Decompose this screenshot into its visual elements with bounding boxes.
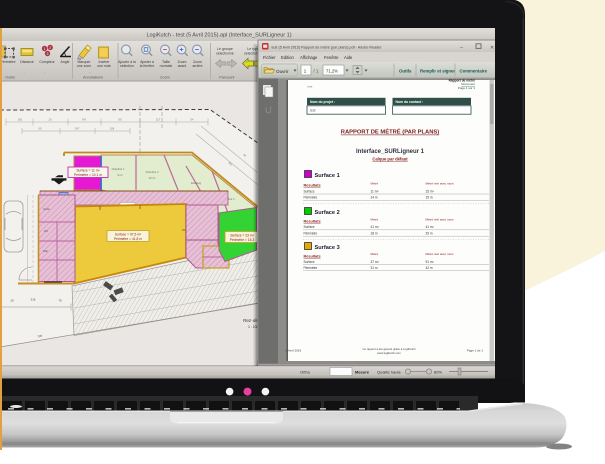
svg-text:Zoom: Zoom bbox=[160, 76, 170, 80]
svg-text:Fenêtre: Fenêtre bbox=[324, 55, 339, 60]
svg-text:Chambre 1: Chambre 1 bbox=[112, 167, 125, 171]
svg-text:Métré: Métré bbox=[371, 181, 379, 185]
svg-text:SdE: SdE bbox=[43, 250, 48, 253]
svg-text:✕: ✕ bbox=[490, 45, 494, 51]
svg-text:/ 1: / 1 bbox=[314, 69, 319, 74]
svg-text:Commentaire: Commentaire bbox=[460, 69, 488, 74]
svg-text:Angle: Angle bbox=[61, 60, 70, 64]
svg-text:10 m²: 10 m² bbox=[149, 176, 156, 180]
svg-text:Périmètre = 14,1 m: Périmètre = 14,1 m bbox=[74, 173, 102, 177]
svg-text:281: 281 bbox=[18, 118, 23, 122]
svg-text:158: 158 bbox=[110, 127, 115, 131]
svg-text:Métré: Métré bbox=[371, 252, 379, 256]
svg-text:www.logikutch.com: www.logikutch.com bbox=[377, 351, 401, 355]
svg-text:Qualité haute: Qualité haute bbox=[377, 370, 402, 375]
svg-text:Ouvrir: Ouvrir bbox=[276, 69, 289, 74]
svg-text:247: 247 bbox=[75, 127, 80, 131]
svg-text:Page 1 de 1: Page 1 de 1 bbox=[467, 349, 484, 353]
svg-text:Dressing: Dressing bbox=[191, 181, 202, 185]
svg-text:sélection: sélection bbox=[120, 64, 134, 68]
svg-text:Aide: Aide bbox=[344, 55, 353, 60]
svg-text:Périmètre = 18,3: Périmètre = 18,3 bbox=[230, 238, 255, 242]
svg-text:Compteur: Compteur bbox=[39, 60, 55, 64]
svg-text:Métré réel avec murs: Métré réel avec murs bbox=[426, 252, 455, 256]
svg-text:test (5 Avril 2015) Rapport de: test (5 Avril 2015) Rapport de métré (pa… bbox=[272, 45, 383, 49]
svg-text:9 m²: 9 m² bbox=[117, 173, 122, 177]
svg-text:normale: normale bbox=[160, 64, 173, 68]
svg-text:Surface: Surface bbox=[304, 225, 315, 229]
svg-text:la fenêtre: la fenêtre bbox=[140, 64, 155, 68]
svg-text:3: 3 bbox=[47, 52, 49, 56]
svg-text:avant: avant bbox=[178, 64, 187, 68]
svg-text:Périmètre: Périmètre bbox=[0, 60, 15, 64]
svg-text:test: test bbox=[308, 84, 313, 88]
svg-text:Remplir et signer: Remplir et signer bbox=[420, 69, 455, 74]
svg-text:Nom du contact :: Nom du contact : bbox=[396, 100, 424, 104]
svg-text:Surface = 23 m²: Surface = 23 m² bbox=[230, 233, 254, 237]
svg-text:29 m: 29 m bbox=[426, 231, 433, 235]
svg-text:71,2%: 71,2% bbox=[326, 68, 338, 73]
svg-text:Résultats: Résultats bbox=[304, 220, 321, 224]
svg-text:Métré: Métré bbox=[371, 217, 379, 221]
svg-text:15 m²: 15 m² bbox=[426, 189, 434, 193]
svg-text:Chambre 2: Chambre 2 bbox=[146, 170, 159, 174]
svg-text:78: 78 bbox=[58, 299, 62, 303]
svg-text:91 m²: 91 m² bbox=[426, 260, 434, 264]
svg-text:Surface: Surface bbox=[304, 189, 315, 193]
svg-text:317: 317 bbox=[156, 118, 161, 122]
svg-text:Page 1 sur 1: Page 1 sur 1 bbox=[458, 86, 475, 90]
svg-text:15 m: 15 m bbox=[426, 196, 433, 200]
svg-text:Surface = 97,5 m²: Surface = 97,5 m² bbox=[115, 232, 142, 236]
svg-text:Surface 3: Surface 3 bbox=[315, 245, 340, 251]
svg-text:Périmètre: Périmètre bbox=[304, 196, 318, 200]
svg-text:RAPPORT DE MÉTRÉ (PAR PLANS): RAPPORT DE MÉTRÉ (PAR PLANS) bbox=[341, 128, 440, 136]
svg-text:Périmètre = 41,8 m: Périmètre = 41,8 m bbox=[114, 237, 142, 241]
svg-text:Surface 2: Surface 2 bbox=[315, 210, 340, 216]
svg-text:Annotations: Annotations bbox=[83, 76, 103, 80]
svg-text:WC: WC bbox=[44, 230, 48, 233]
svg-text:Edition: Edition bbox=[281, 55, 294, 60]
svg-text:Ortho: Ortho bbox=[300, 370, 311, 375]
svg-text:Calque par défaut: Calque par défaut bbox=[372, 156, 408, 161]
svg-text:Outils: Outils bbox=[5, 76, 15, 80]
svg-text:80%: 80% bbox=[434, 370, 442, 375]
svg-text:9 Avril 2019: 9 Avril 2019 bbox=[286, 349, 302, 353]
svg-text:Parcourir: Parcourir bbox=[219, 76, 235, 80]
svg-text:Périmètre: Périmètre bbox=[304, 266, 318, 270]
svg-text:Surface: Surface bbox=[304, 260, 315, 264]
svg-text:Outils: Outils bbox=[399, 69, 412, 74]
svg-text:Interface_SURLigneur 1: Interface_SURLigneur 1 bbox=[356, 149, 425, 155]
svg-text:18 m: 18 m bbox=[371, 231, 378, 235]
svg-text:347: 347 bbox=[82, 118, 87, 122]
svg-text:14 m: 14 m bbox=[371, 196, 378, 200]
svg-text:une note: une note bbox=[97, 64, 111, 68]
svg-text:41 m²: 41 m² bbox=[426, 225, 434, 229]
svg-text:Fichier: Fichier bbox=[263, 55, 276, 60]
svg-text:42 m: 42 m bbox=[426, 266, 433, 270]
svg-text:Nom du projet :: Nom du projet : bbox=[310, 100, 335, 104]
svg-text:Périmètre: Périmètre bbox=[304, 231, 318, 235]
svg-text:Résultats: Résultats bbox=[304, 184, 321, 188]
svg-text:318: 318 bbox=[31, 298, 36, 302]
svg-text:2: 2 bbox=[49, 46, 51, 50]
svg-text:Le groupe: Le groupe bbox=[217, 47, 233, 51]
svg-text:test: test bbox=[310, 108, 316, 112]
svg-text:Distance: Distance bbox=[20, 60, 34, 64]
svg-text:Mesuré: Mesuré bbox=[355, 370, 370, 375]
svg-text:Cellier: Cellier bbox=[43, 208, 50, 211]
svg-text:41 m²: 41 m² bbox=[371, 225, 379, 229]
svg-text:11 m²: 11 m² bbox=[371, 189, 379, 193]
svg-text:Métré réel avec murs: Métré réel avec murs bbox=[426, 181, 455, 185]
svg-text:sélectionné: sélectionné bbox=[216, 52, 234, 56]
svg-text:Métré réel avec murs: Métré réel avec murs bbox=[426, 217, 455, 221]
svg-text:une zone: une zone bbox=[77, 64, 91, 68]
svg-text:arrière: arrière bbox=[192, 64, 202, 68]
svg-text:37 m²: 37 m² bbox=[371, 260, 379, 264]
svg-text:LogiKutch - test (5 Avril 2015: LogiKutch - test (5 Avril 2015).apl (Int… bbox=[146, 32, 291, 38]
svg-text:Surface 1: Surface 1 bbox=[315, 173, 340, 179]
svg-text:Résultats: Résultats bbox=[304, 254, 321, 258]
svg-text:1: 1 bbox=[44, 47, 46, 51]
svg-text:Surface = 11 m²: Surface = 11 m² bbox=[76, 169, 100, 173]
svg-text:Affichage: Affichage bbox=[300, 55, 318, 60]
svg-text:28: 28 bbox=[10, 299, 14, 303]
svg-text:31 m: 31 m bbox=[371, 266, 378, 270]
